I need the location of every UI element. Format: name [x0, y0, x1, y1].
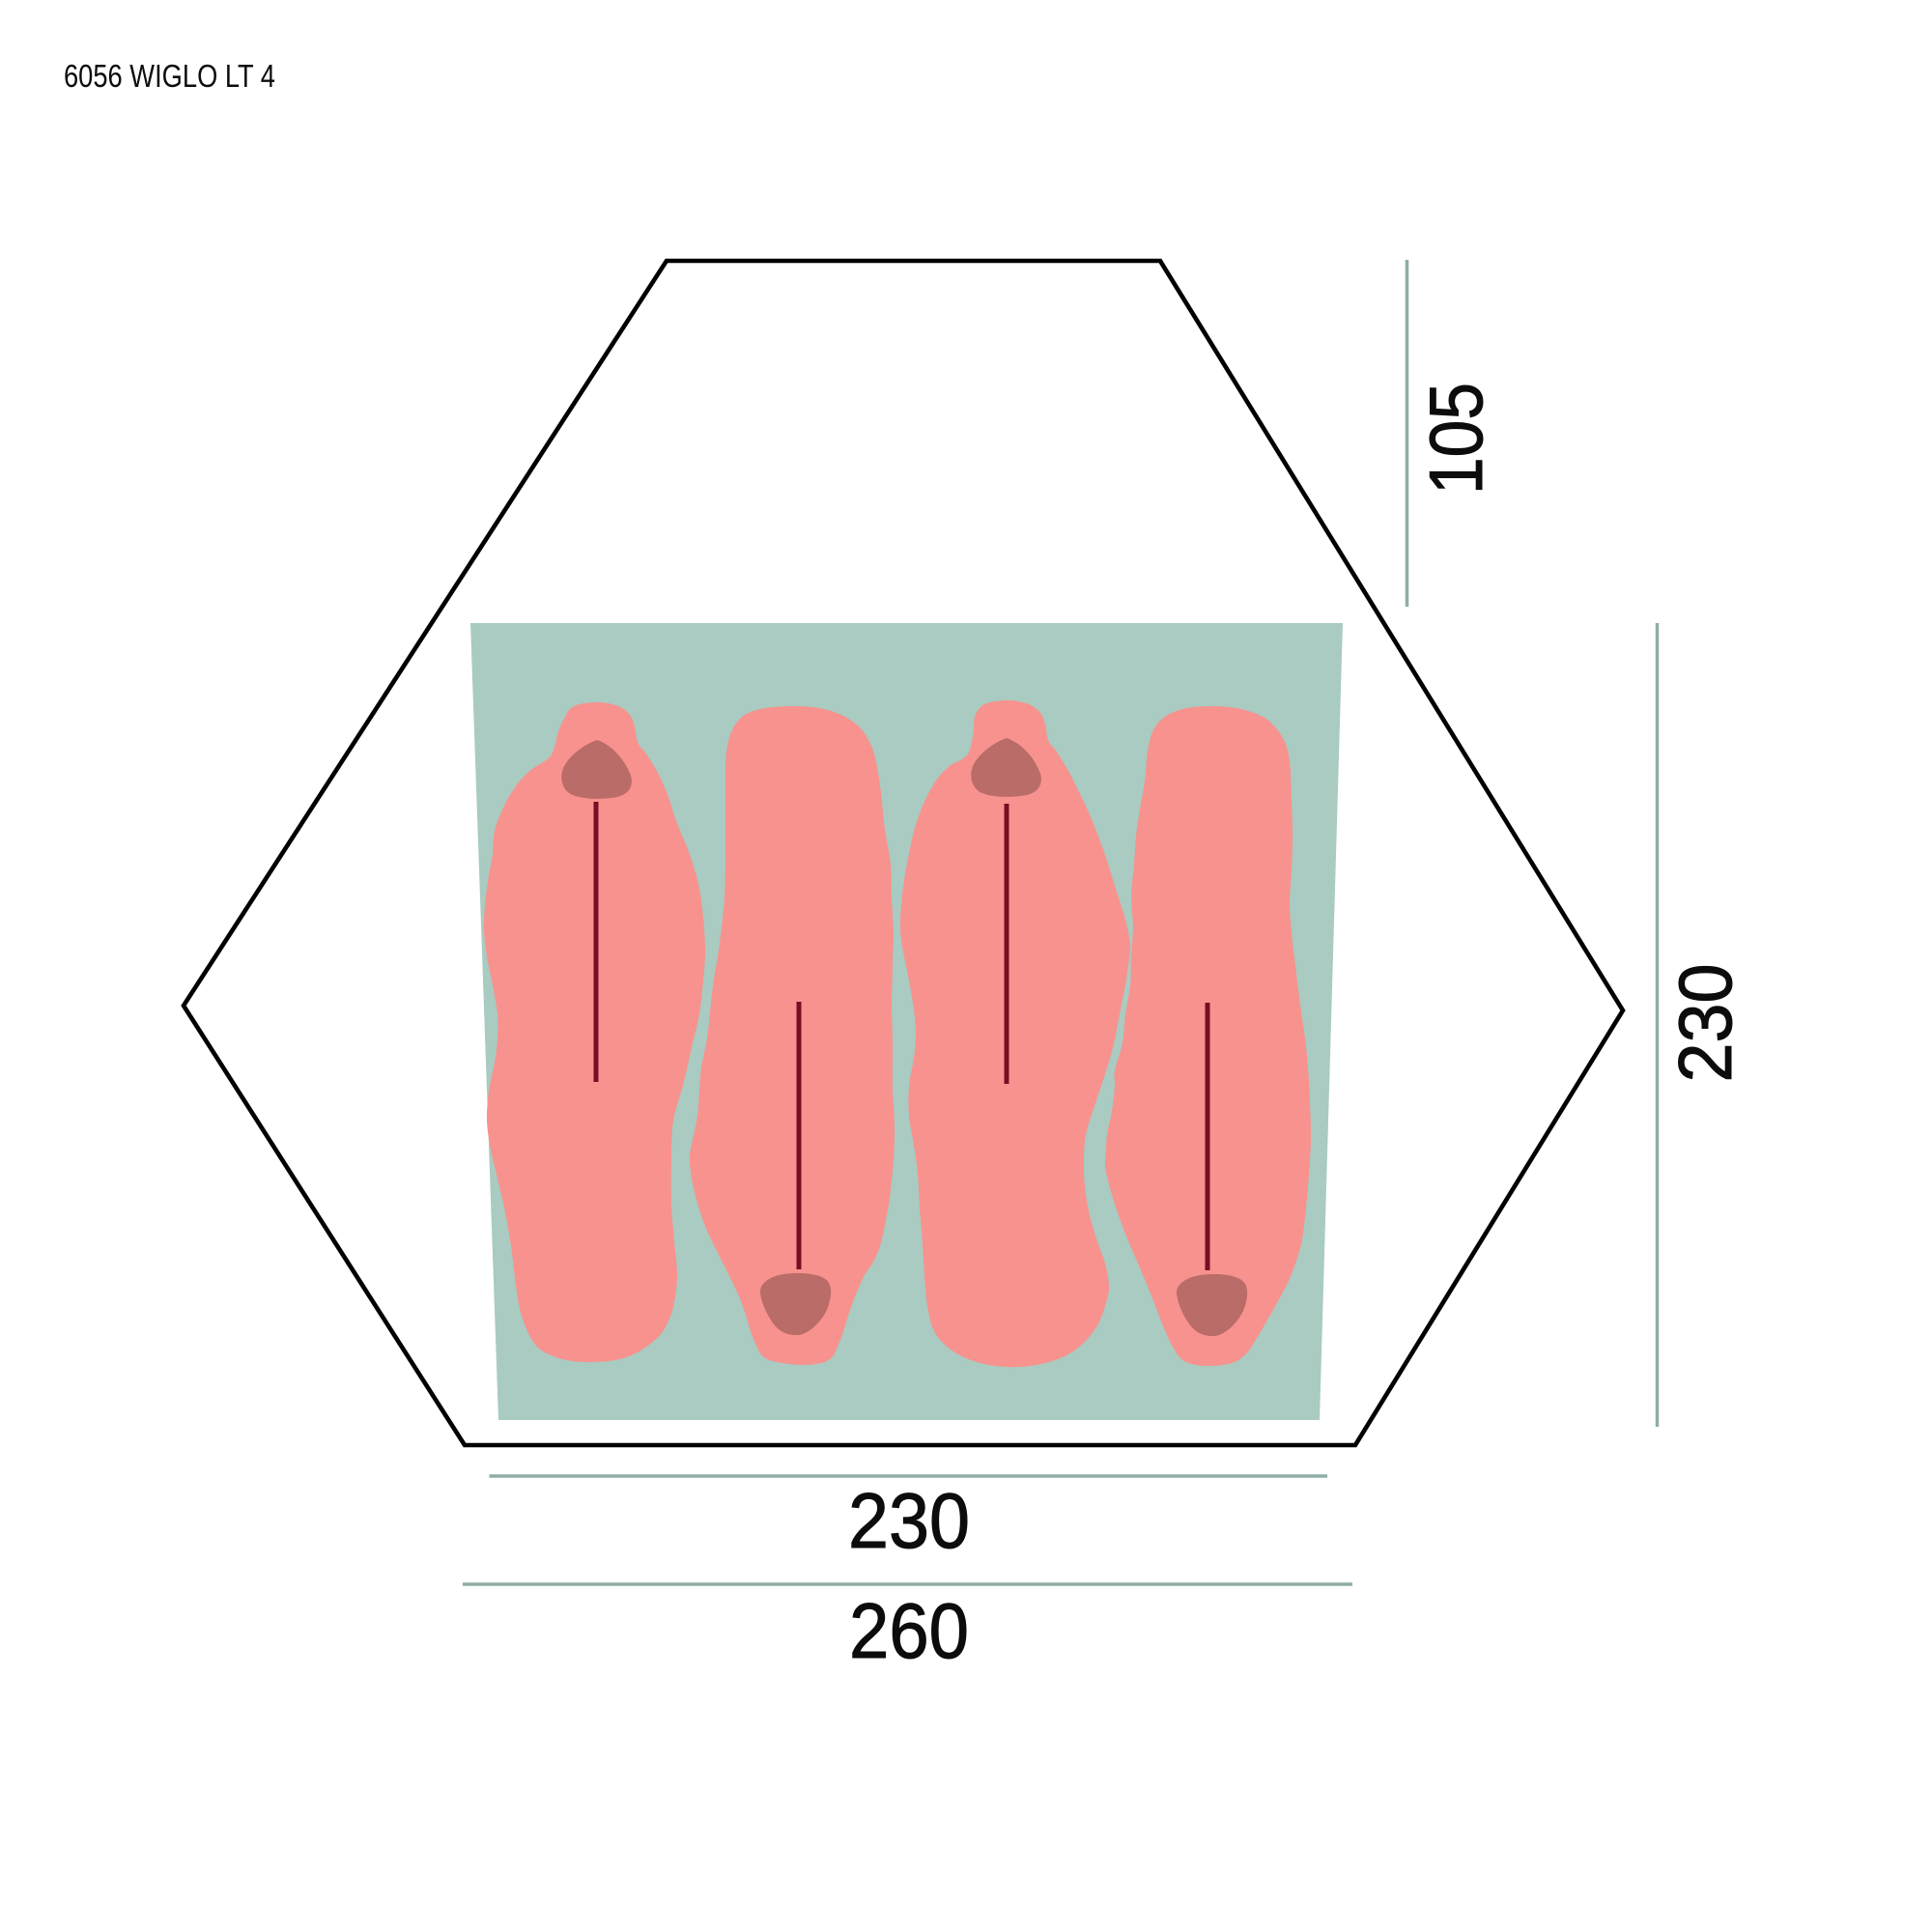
- svg-text:230: 230: [848, 1478, 970, 1565]
- svg-text:260: 260: [849, 1588, 969, 1675]
- svg-text:6056 WIGLO LT 4: 6056 WIGLO LT 4: [64, 58, 275, 94]
- svg-text:105: 105: [1413, 383, 1498, 495]
- svg-text:230: 230: [1662, 964, 1747, 1083]
